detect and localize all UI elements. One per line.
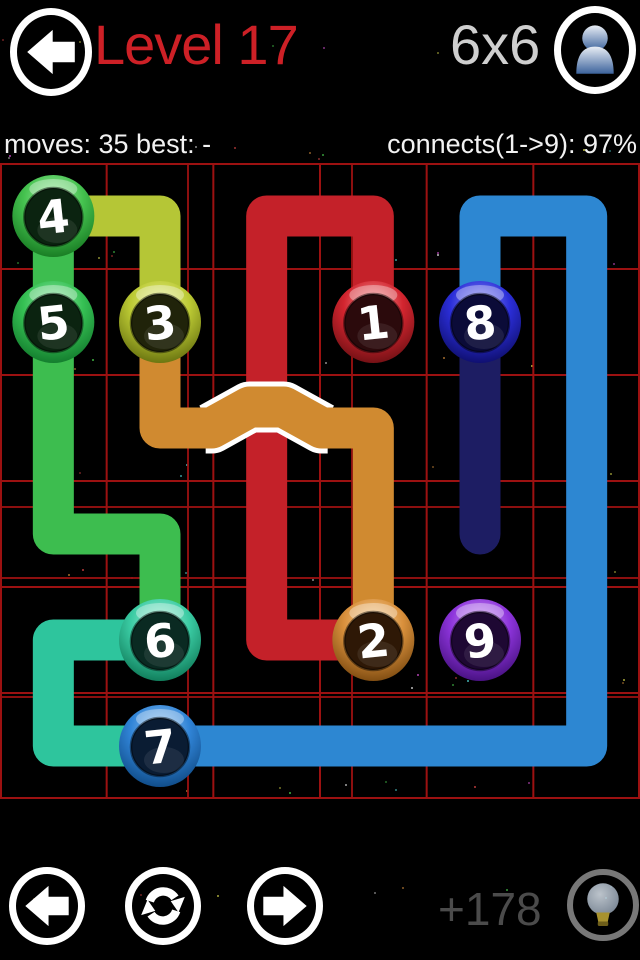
previous-level-button[interactable] — [9, 867, 85, 945]
page-title: Level 17 — [94, 12, 298, 77]
svg-text:2: 2 — [355, 612, 392, 669]
dot-8[interactable]: 8 — [439, 281, 521, 363]
svg-text:3: 3 — [141, 294, 178, 351]
dot-3[interactable]: 3 — [119, 281, 201, 363]
profile-button[interactable] — [554, 6, 636, 94]
lightbulb-icon — [573, 875, 633, 935]
game-board[interactable]: 123456789 — [0, 163, 640, 799]
left-arrow-icon — [16, 874, 78, 938]
dot-6[interactable]: 6 — [119, 599, 201, 681]
next-level-button[interactable] — [247, 867, 323, 945]
dot-9[interactable]: 9 — [439, 599, 521, 681]
moves-stat: moves: 35 best: - — [4, 129, 211, 160]
right-arrow-icon — [254, 874, 316, 938]
connects-stat: connects(1->9): 97% — [387, 129, 637, 160]
dot-4[interactable]: 4 — [12, 175, 94, 257]
dot-5[interactable]: 5 — [12, 281, 94, 363]
svg-text:4: 4 — [35, 188, 72, 245]
person-icon — [561, 13, 629, 87]
svg-text:8: 8 — [461, 294, 498, 351]
back-button[interactable] — [10, 8, 92, 96]
dot-1[interactable]: 1 — [332, 281, 414, 363]
refresh-icon — [132, 874, 194, 938]
svg-text:7: 7 — [141, 718, 178, 775]
svg-text:5: 5 — [35, 294, 72, 351]
grid-size-label: 6x6 — [450, 12, 540, 77]
svg-text:6: 6 — [141, 612, 178, 669]
back-arrow-icon — [17, 15, 85, 89]
dot-7[interactable]: 7 — [119, 705, 201, 787]
svg-text:9: 9 — [461, 612, 498, 669]
dot-2[interactable]: 2 — [332, 599, 414, 681]
svg-text:1: 1 — [355, 294, 392, 351]
hint-button[interactable] — [567, 869, 639, 941]
restart-button[interactable] — [125, 867, 201, 945]
hint-points-label: +178 — [438, 882, 542, 936]
